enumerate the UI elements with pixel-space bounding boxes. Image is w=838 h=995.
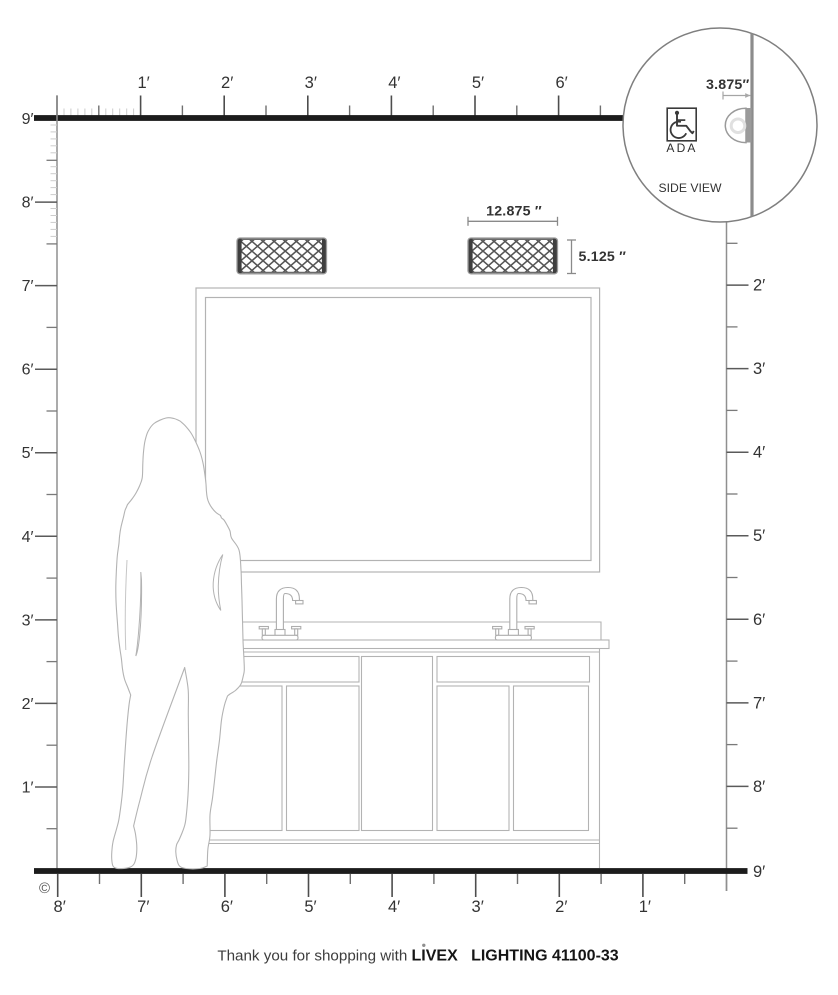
- svg-text:8′: 8′: [54, 898, 66, 916]
- svg-text:©: ©: [39, 880, 50, 897]
- svg-text:1′: 1′: [639, 898, 651, 916]
- svg-text:ADA: ADA: [666, 141, 697, 155]
- svg-text:12.875 ″: 12.875 ″: [486, 204, 542, 220]
- svg-text:2′: 2′: [753, 277, 765, 295]
- svg-text:2′: 2′: [555, 898, 567, 916]
- svg-text:6′: 6′: [22, 362, 34, 379]
- svg-text:2′: 2′: [22, 696, 34, 713]
- svg-text:5′: 5′: [304, 898, 316, 916]
- svg-text:4′: 4′: [753, 444, 765, 462]
- svg-text:5′: 5′: [22, 445, 34, 462]
- svg-text:4′: 4′: [388, 898, 400, 916]
- svg-text:2′: 2′: [221, 74, 233, 92]
- svg-text:Thank you for shopping with LI: Thank you for shopping with LIVEX LIGHTI…: [217, 948, 618, 965]
- svg-text:7′: 7′: [753, 694, 765, 712]
- svg-text:5.125 ″: 5.125 ″: [579, 249, 627, 265]
- svg-text:3′: 3′: [472, 898, 484, 916]
- svg-text:3′: 3′: [305, 74, 317, 92]
- svg-text:3.875″: 3.875″: [706, 77, 750, 93]
- svg-text:9′: 9′: [753, 863, 765, 881]
- svg-text:8′: 8′: [753, 778, 765, 796]
- svg-text:4′: 4′: [388, 74, 400, 92]
- svg-text:4′: 4′: [22, 529, 34, 546]
- svg-text:8′: 8′: [22, 195, 34, 212]
- svg-text:6′: 6′: [221, 898, 233, 916]
- svg-text:SIDE VIEW: SIDE VIEW: [659, 181, 722, 195]
- svg-text:5′: 5′: [472, 74, 484, 92]
- svg-text:7′: 7′: [137, 898, 149, 916]
- svg-text:1′: 1′: [137, 74, 149, 92]
- svg-text:1′: 1′: [22, 780, 34, 797]
- svg-text:3′: 3′: [753, 360, 765, 378]
- svg-text:6′: 6′: [753, 611, 765, 629]
- svg-text:3′: 3′: [22, 612, 34, 629]
- svg-text:6′: 6′: [555, 74, 567, 92]
- svg-text:7′: 7′: [22, 278, 34, 295]
- svg-text:9′: 9′: [22, 111, 34, 128]
- svg-text:5′: 5′: [753, 527, 765, 545]
